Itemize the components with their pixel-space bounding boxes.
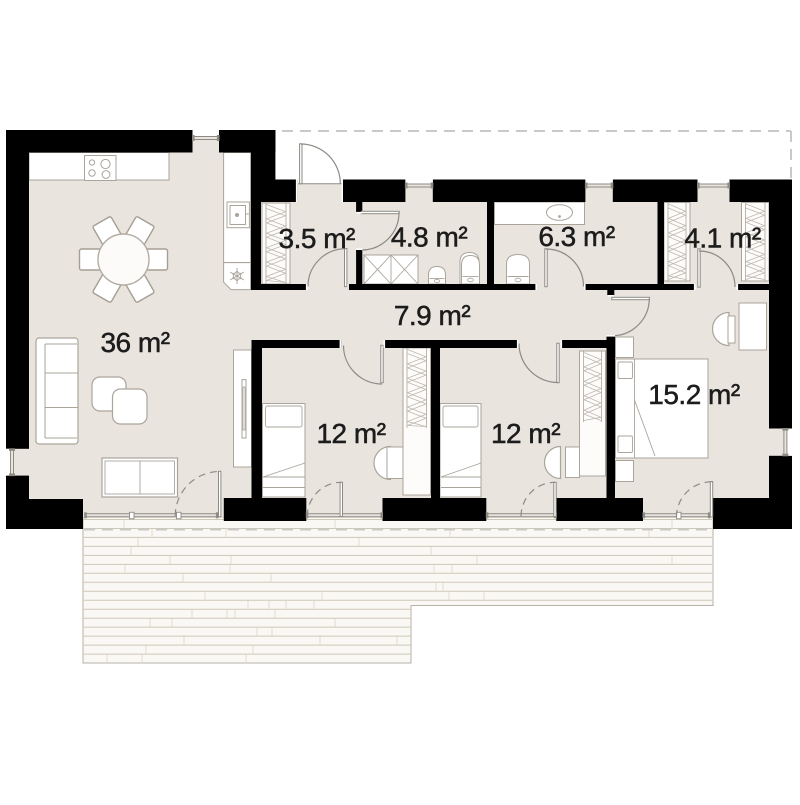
svg-text:3.5 m²: 3.5 m²	[279, 223, 356, 254]
svg-text:15.2 m²: 15.2 m²	[648, 379, 740, 410]
svg-text:4.1 m²: 4.1 m²	[684, 223, 761, 254]
svg-text:12 m²: 12 m²	[491, 418, 560, 449]
svg-text:36 m²: 36 m²	[100, 327, 169, 358]
svg-text:7.9 m²: 7.9 m²	[394, 300, 471, 331]
svg-text:6.3 m²: 6.3 m²	[538, 221, 615, 252]
svg-text:12 m²: 12 m²	[316, 418, 385, 449]
svg-text:4.8 m²: 4.8 m²	[391, 222, 468, 253]
